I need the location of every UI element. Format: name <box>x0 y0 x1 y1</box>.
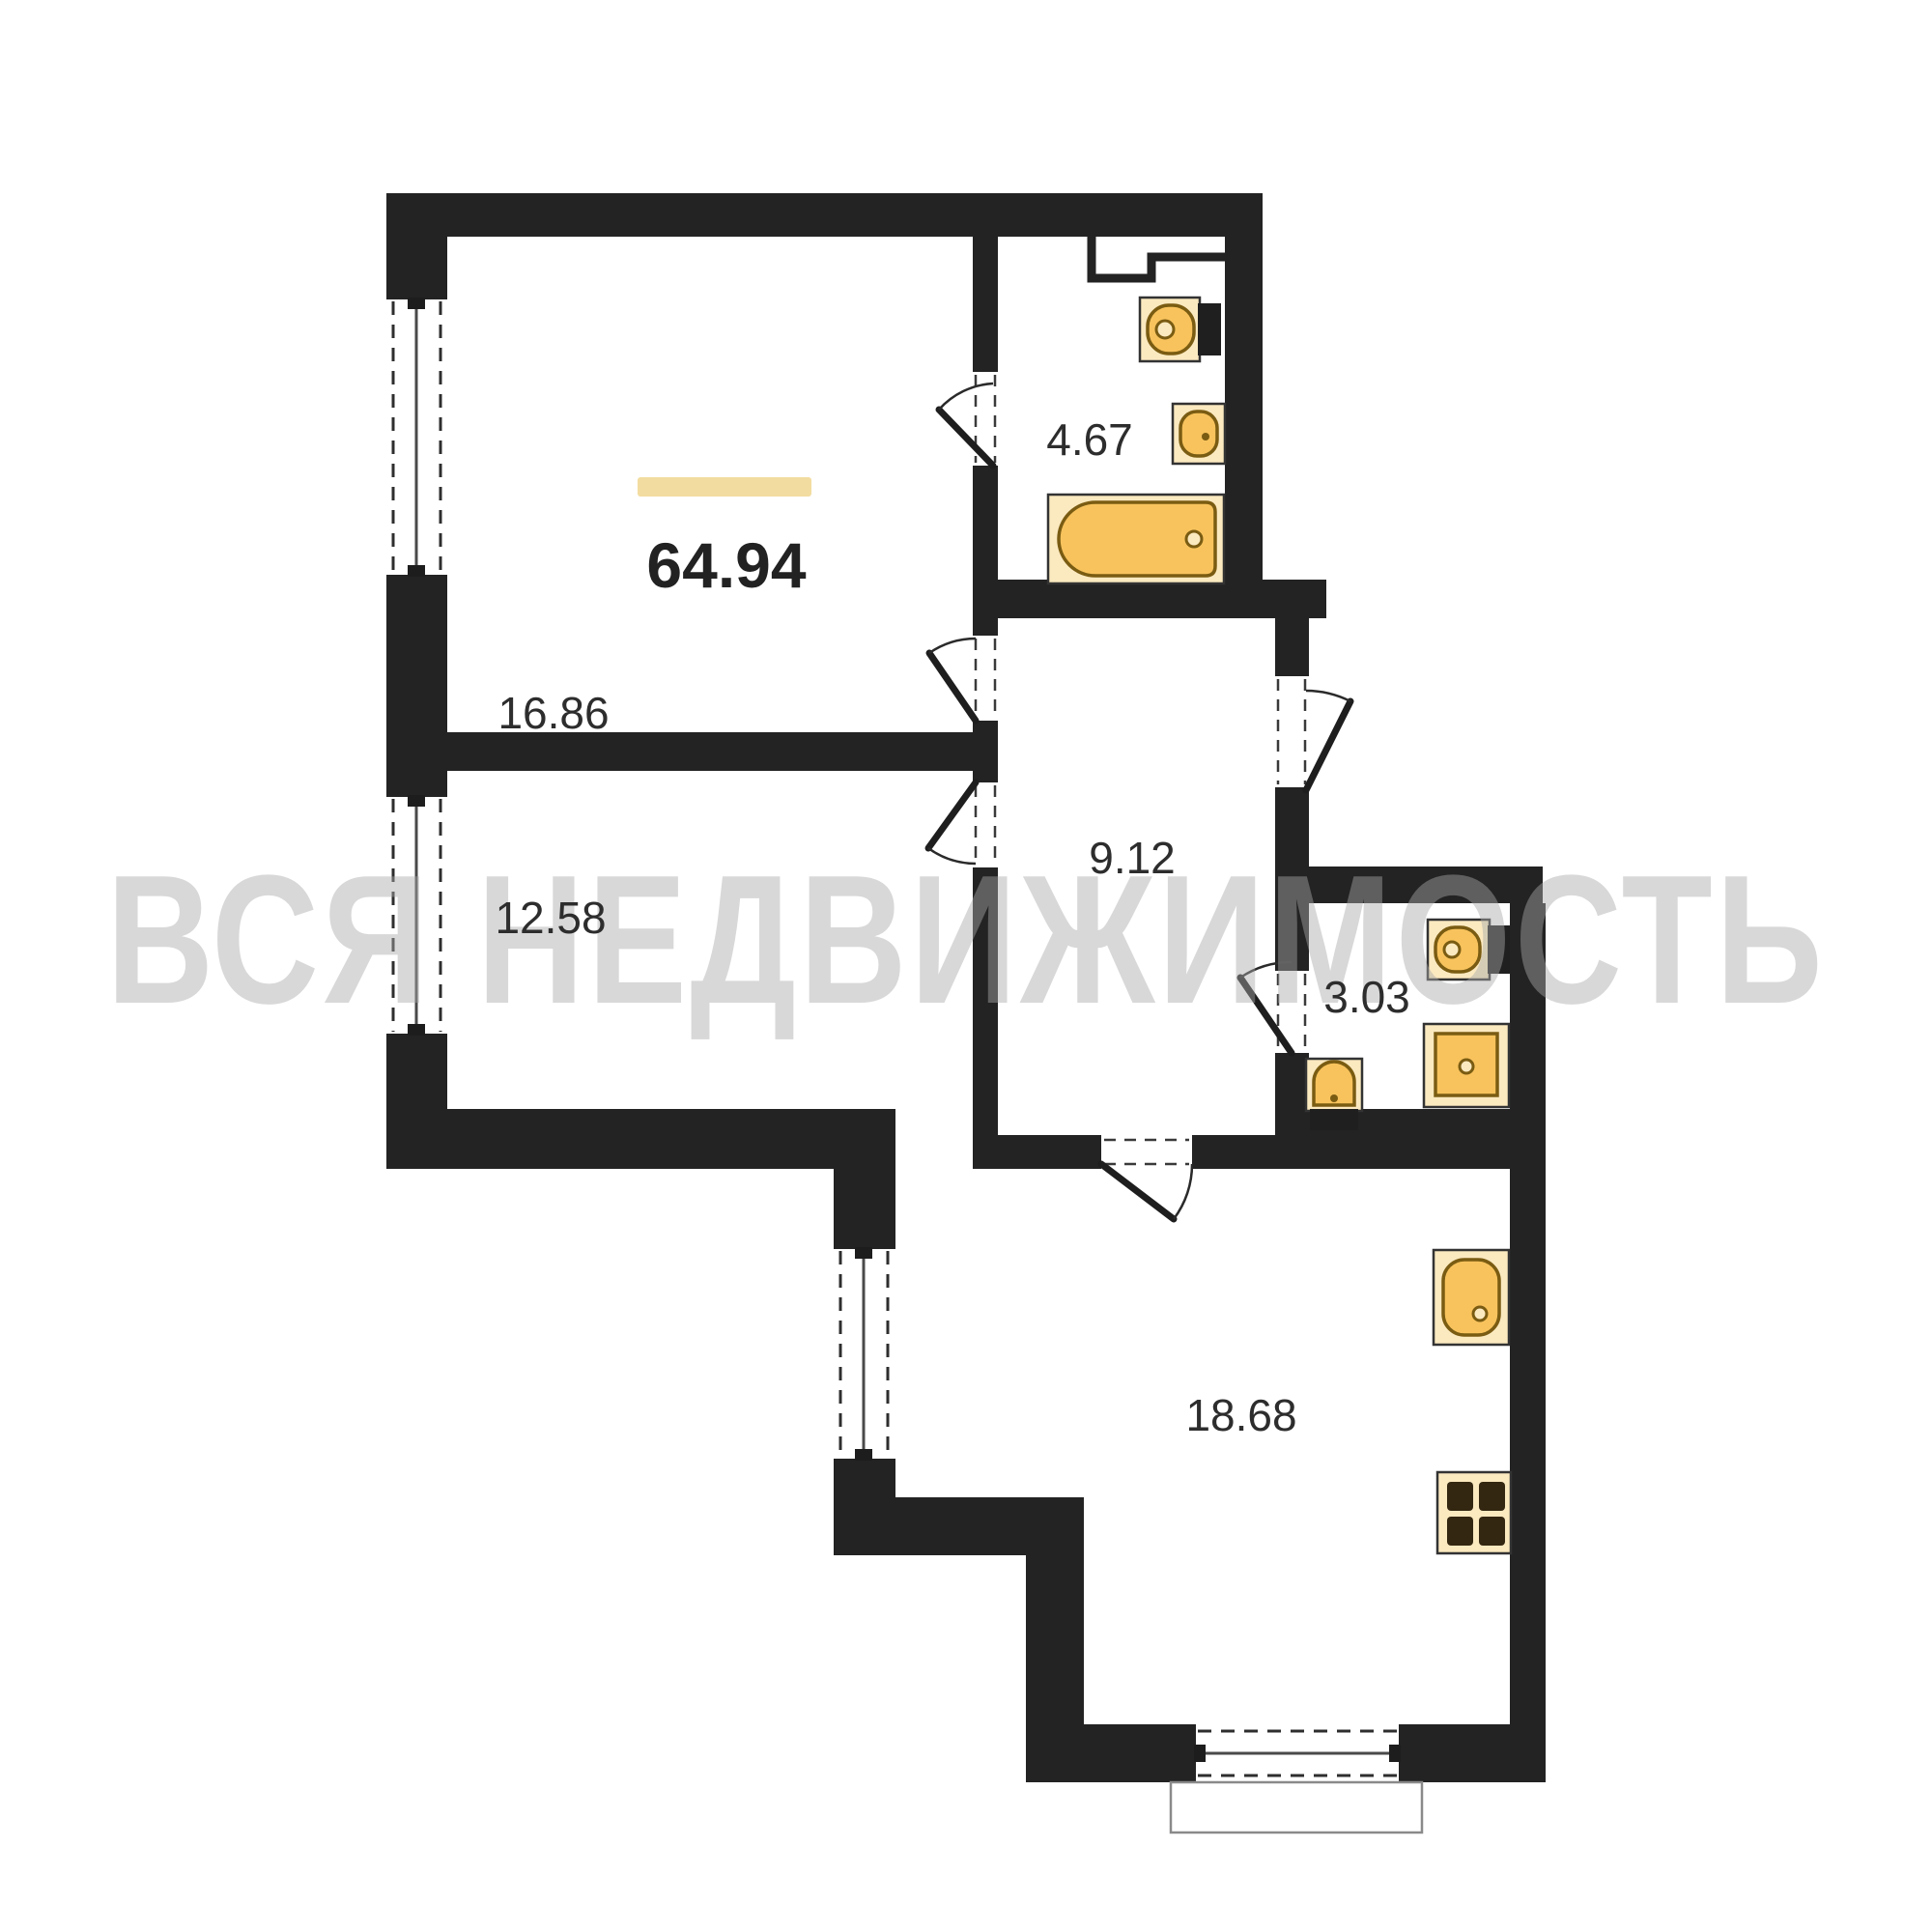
room-label-bathroom: 4.67 <box>1046 414 1133 465</box>
room-label-wc: 3.03 <box>1323 972 1410 1022</box>
total-area-accent-bar <box>638 477 811 497</box>
wall-kitchen-step-h <box>834 1497 1084 1555</box>
wall-stub-doors <box>973 721 998 782</box>
washbasin-wc-icon <box>1306 1059 1362 1130</box>
wall-top <box>386 193 1263 237</box>
room-label-living-room: 16.86 <box>497 688 609 738</box>
stove-icon <box>1437 1472 1511 1553</box>
wall-corridor-bottom-1 <box>973 1135 1101 1169</box>
toilet-bathroom-icon <box>1140 298 1221 361</box>
wall-bedroom-bottom <box>386 1109 895 1169</box>
floor-plan-drawing: ВСЯ НЕДВИЖИМОСТЬ 64.94 16.86 12.58 9.12 … <box>0 0 1932 1932</box>
wall-corridor-left-1 <box>973 618 998 636</box>
room-label-kitchen-living: 18.68 <box>1185 1390 1296 1440</box>
floor-plan-page: ВСЯ НЕДВИЖИМОСТЬ 64.94 16.86 12.58 9.12 … <box>0 0 1932 1932</box>
wall-bathroom-left-1 <box>973 237 998 372</box>
wall-left-1 <box>386 237 447 299</box>
washbasin-bathroom-icon <box>1173 404 1225 464</box>
wall-living-bedroom <box>447 732 973 771</box>
wall-bathroom-right <box>1225 237 1263 618</box>
wall-bathroom-bottom <box>973 580 1326 618</box>
wall-bathroom-left-2 <box>973 466 998 580</box>
bathtub-icon <box>1048 495 1224 583</box>
wall-bottom-1 <box>1026 1724 1196 1782</box>
wall-corridor-right-1 <box>1275 618 1309 676</box>
wall-left-2 <box>386 575 447 797</box>
watermark-text: ВСЯ НЕДВИЖИМОСТЬ <box>106 838 1826 1042</box>
wall-kitchen-left-1 <box>834 1166 895 1249</box>
wall-kitchen-left-2 <box>834 1459 895 1497</box>
wall-corridor-bottom-2 <box>1192 1135 1275 1169</box>
kitchen-sink-icon <box>1434 1250 1509 1345</box>
wall-kitchen-step-v <box>1026 1555 1084 1724</box>
window-sill <box>1171 1782 1422 1833</box>
wall-bottom-2 <box>1399 1724 1546 1782</box>
total-area-label: 64.94 <box>646 529 806 601</box>
room-label-hallway: 9.12 <box>1089 833 1176 883</box>
room-label-bedroom: 12.58 <box>495 893 606 943</box>
